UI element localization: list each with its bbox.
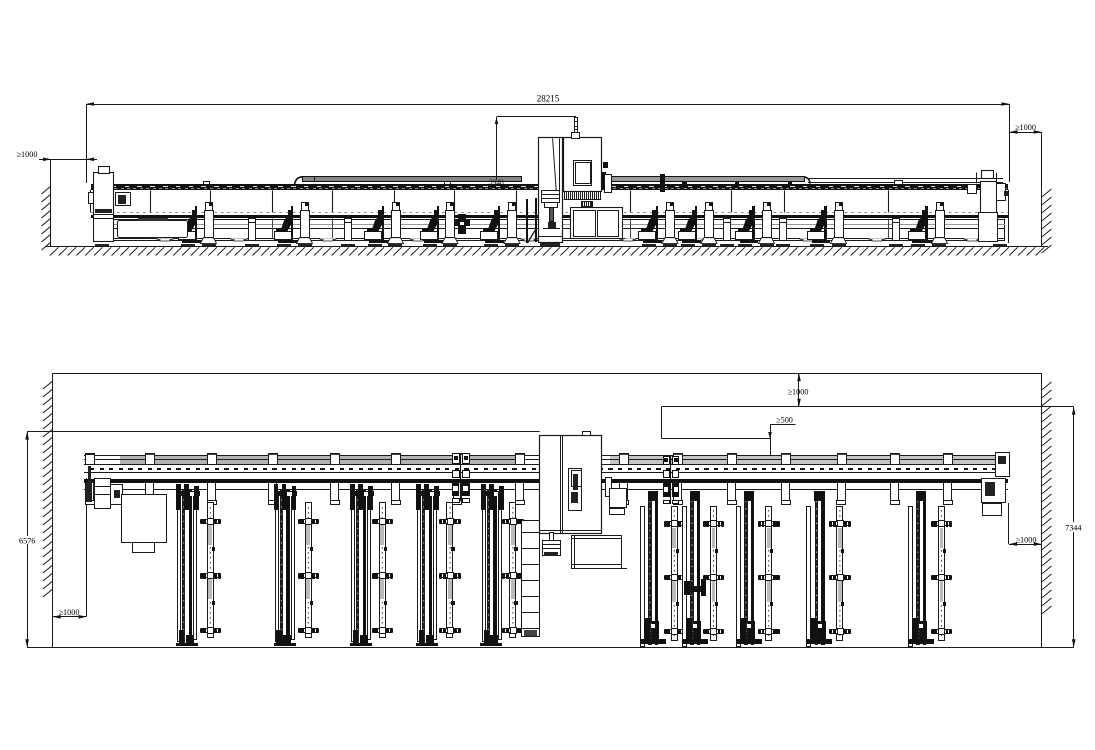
svg-text:28215: 28215 <box>537 94 560 104</box>
svg-text:7344: 7344 <box>1065 523 1081 532</box>
svg-text:3948: 3948 <box>489 177 504 186</box>
svg-text:≥1000: ≥1000 <box>1016 535 1037 544</box>
svg-text:≥1000: ≥1000 <box>1015 123 1036 132</box>
svg-text:≥1000: ≥1000 <box>59 608 80 617</box>
svg-text:≥1000: ≥1000 <box>17 150 38 159</box>
svg-text:≥500: ≥500 <box>776 415 793 424</box>
svg-text:6576: 6576 <box>19 536 35 545</box>
